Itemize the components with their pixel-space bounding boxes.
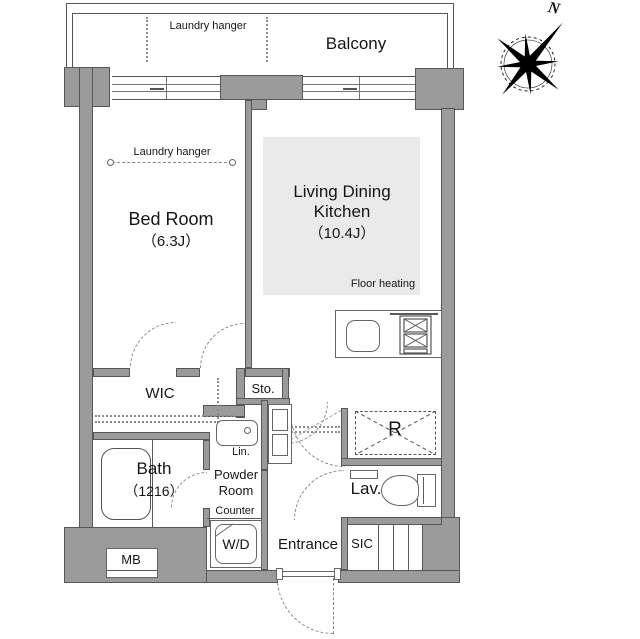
toilet-bowl-icon [381, 475, 419, 506]
balcony-inner-rail [72, 13, 448, 75]
kitchen-sink [346, 320, 380, 352]
wall [176, 368, 200, 377]
lav-label: Lav. [351, 480, 382, 499]
meter-box-line [106, 570, 158, 571]
compass-icon [486, 8, 576, 108]
bath-label: Bath [137, 460, 172, 479]
floor-plan: N Laundry hanger Balcony Laundry hanger … [0, 0, 640, 639]
wall [341, 517, 442, 525]
bath-size-label: （1216） [124, 484, 183, 499]
wall [79, 67, 93, 582]
wic-hanger-pipe [95, 415, 235, 417]
wall [441, 108, 455, 575]
door-arc-wic [130, 322, 176, 368]
hanger-ring [229, 159, 236, 166]
stove-icon [399, 315, 433, 357]
lav-shelf [350, 470, 378, 479]
sic-shelf-line [393, 525, 394, 570]
door-post [334, 568, 341, 580]
balcony-laundry-pole-left [146, 17, 148, 62]
wall [220, 75, 303, 100]
powder-room-label-line2: Room [219, 484, 254, 498]
door-post [276, 568, 283, 580]
bedroom-size-label: （6.3J） [142, 234, 200, 251]
entrance-door-leaf [333, 578, 334, 634]
wall [338, 570, 460, 583]
wall [341, 517, 348, 570]
floor-heating-label: Floor heating [351, 278, 415, 290]
ldk-label-line2: Kitchen [314, 203, 371, 222]
wall [261, 470, 268, 570]
linen-shelf-box [272, 409, 288, 431]
wic-hanger-pipe [95, 421, 235, 423]
faucet-icon [244, 427, 251, 434]
hanger-ring [107, 159, 114, 166]
powder-room-label-line1: Powder [214, 468, 258, 482]
toilet-tank-line [423, 477, 424, 504]
balcony-laundry-pole-right [266, 17, 268, 62]
wall [261, 400, 268, 470]
wd-label: W/D [222, 537, 249, 552]
wall [282, 368, 289, 402]
balcony-laundry-label: Laundry hanger [169, 20, 246, 32]
wall [93, 432, 210, 440]
ldk-size-label: （10.4J） [309, 226, 376, 243]
wall [93, 368, 130, 377]
bedroom-laundry-line [112, 162, 232, 163]
entrance-label: Entrance [278, 537, 338, 554]
door-arc-lavatory [294, 470, 344, 520]
wall [203, 440, 210, 470]
entrance-threshold [280, 571, 336, 577]
linen-shelf-box [272, 434, 288, 456]
toilet-tank-icon [417, 474, 436, 507]
window-bedroom [112, 76, 220, 100]
ldk-label-line1: Living Dining [293, 183, 390, 202]
mb-label: MB [121, 553, 141, 567]
sic-label: SIC [351, 537, 373, 551]
wic-label: WIC [145, 386, 174, 403]
wall [415, 68, 464, 110]
window-ldk [303, 76, 415, 100]
wall [341, 458, 442, 466]
balcony-label: Balcony [326, 35, 386, 54]
refrigerator-label: R [388, 420, 402, 441]
counter-line [207, 518, 262, 519]
counter-label: Counter [215, 505, 254, 517]
sic-shelf-line [408, 525, 409, 570]
door-arc-bedroom [200, 323, 245, 368]
sto-label: Sto. [251, 382, 274, 396]
wall-bedroom-ldk [245, 100, 252, 368]
lin-label: Lin. [232, 446, 250, 458]
bedroom-label: Bed Room [128, 210, 213, 230]
sic-shelf-line [378, 525, 379, 570]
bedroom-laundry-label: Laundry hanger [133, 146, 210, 158]
washbasin-icon [216, 420, 258, 446]
door-arc-entrance [277, 578, 333, 634]
door-arc-ldk [290, 412, 345, 467]
